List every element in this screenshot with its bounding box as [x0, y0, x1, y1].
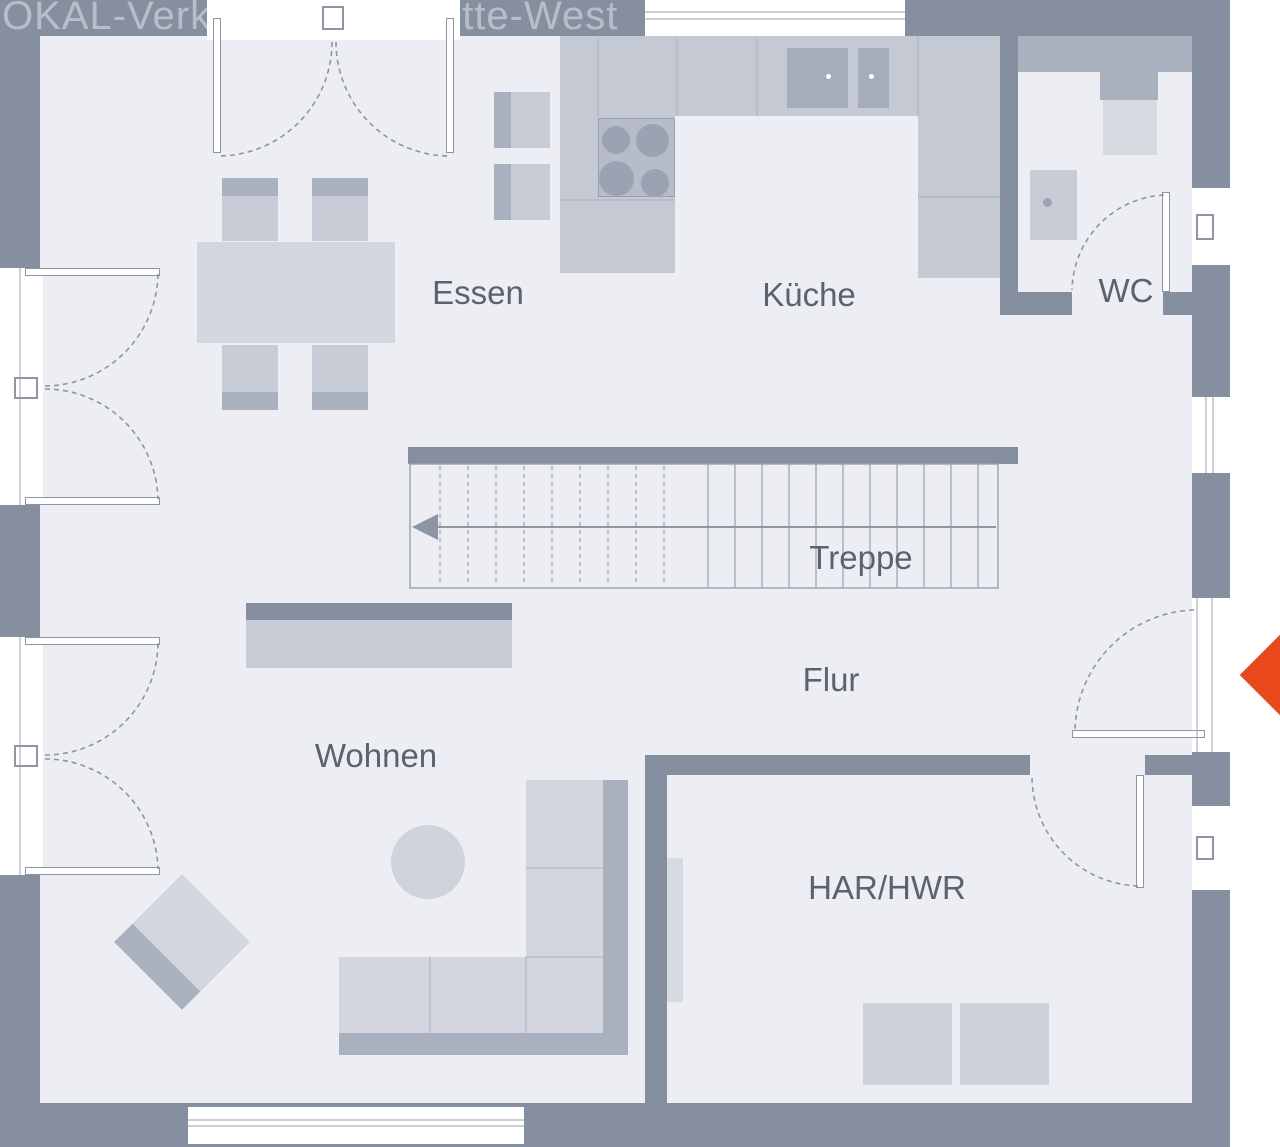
chair-back [312, 392, 368, 410]
wall-har-left [645, 755, 667, 1103]
sofa-backrest-bottom [339, 1033, 628, 1055]
chair-back [312, 178, 368, 196]
wall-wc-bottom-left [1000, 292, 1072, 315]
room-label-wc: WC [1099, 272, 1154, 310]
wall-bottom [0, 1103, 1230, 1147]
sofa-backrest-right [603, 780, 628, 1055]
living-room-window [188, 1107, 524, 1144]
watermark-text-left: OKAL-Verk [2, 0, 211, 39]
wall-har-top [662, 755, 1030, 775]
door-handle-icon [14, 377, 38, 399]
wc-door-leaf [1162, 192, 1170, 292]
wall-har-top-right [1145, 755, 1192, 775]
washer [863, 1003, 952, 1085]
wc-sink [1030, 170, 1077, 240]
room-label-flur: Flur [803, 661, 860, 699]
chair-seat [312, 345, 368, 392]
kitchen-counter-top [560, 36, 1000, 116]
room-label-har-hwr: HAR/HWR [808, 869, 966, 907]
room-label-wohnen: Wohnen [315, 737, 437, 775]
faucet-dot-icon [826, 74, 831, 79]
wall-right [1192, 0, 1230, 1147]
sideboard-back [246, 603, 512, 620]
chair-seat [222, 196, 278, 241]
chair-back [222, 178, 278, 196]
entrance-door-frame [1192, 598, 1230, 752]
dryer [960, 1003, 1049, 1085]
chair-seat [222, 345, 278, 392]
kitchen-cabinet-edge [494, 164, 511, 220]
terrace-door-leaf [213, 18, 221, 153]
faucet-dot-icon [1043, 198, 1052, 207]
room-label-essen: Essen [432, 274, 524, 312]
french-door-leaf [25, 497, 160, 505]
burner-icon [599, 161, 634, 196]
wc-shelf [1018, 36, 1192, 72]
kitchen-sink-basin [787, 48, 848, 108]
terrace-door-leaf [446, 18, 454, 153]
wall-wc-bottom-right [1163, 292, 1192, 315]
door-handle-icon [322, 6, 344, 30]
chair-seat [312, 196, 368, 241]
entrance-arrow-icon [1240, 630, 1280, 721]
entrance-door-leaf [1072, 730, 1205, 738]
french-door-leaf [25, 268, 160, 276]
wall-top-right [905, 0, 1230, 36]
wall-left-mid [0, 505, 40, 637]
wall-left-upper [0, 0, 40, 268]
kitchen-cabinet-edge [494, 92, 511, 148]
dining-table [197, 242, 395, 343]
faucet-dot-icon [869, 74, 874, 79]
room-label-kueche: Küche [762, 276, 856, 314]
toilet-tank [1100, 72, 1158, 100]
kitchen-counter-right [918, 116, 1000, 278]
floor-plan: OKAL-Verk Mitte-West [0, 0, 1280, 1147]
coffee-table [391, 825, 465, 899]
sideboard [246, 620, 512, 668]
kitchen-window [645, 0, 905, 36]
french-door-leaf [25, 867, 160, 875]
burner-icon [636, 124, 669, 157]
sofa-seats-vertical [526, 780, 603, 1033]
wall-wc-left [1000, 33, 1018, 315]
stair-window [1192, 397, 1230, 473]
chair-back [222, 392, 278, 410]
har-door-leaf [1136, 775, 1144, 888]
window-handle-icon [1196, 214, 1214, 240]
burner-icon [602, 126, 630, 154]
french-door-leaf [25, 637, 160, 645]
burner-icon [641, 169, 669, 197]
sofa-seats-horizontal [339, 957, 526, 1033]
window-handle-icon [1196, 836, 1214, 860]
wall-stair [408, 447, 1018, 464]
room-label-treppe: Treppe [809, 539, 912, 577]
door-handle-icon [14, 745, 38, 767]
toilet-bowl [1103, 100, 1157, 155]
